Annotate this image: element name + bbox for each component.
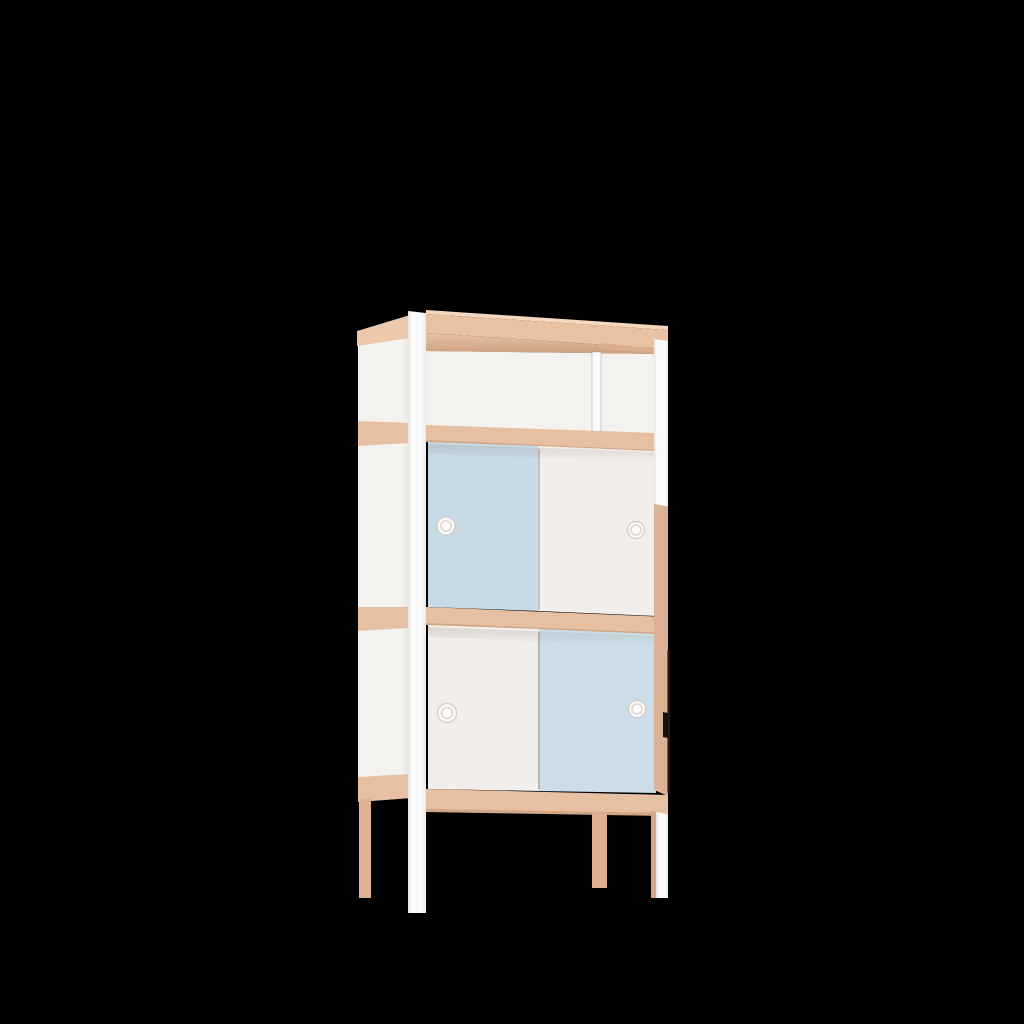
side-bottom-rail: [358, 774, 410, 802]
upper-compartment: [428, 442, 656, 616]
lower-right-knob: [629, 701, 646, 718]
lower-left-knob: [438, 704, 457, 723]
right-edge-gap: [663, 712, 668, 738]
right-edge: [654, 339, 669, 796]
front-left-post: [408, 311, 426, 913]
front-right-leg: [656, 812, 668, 898]
lower-compartment: [428, 625, 656, 793]
side-middle-rail-lower: [358, 607, 410, 631]
knob-circle: [629, 701, 646, 718]
side-panel: [358, 335, 410, 802]
back-left-leg: [359, 798, 371, 898]
back-right-leg: [592, 812, 607, 888]
render-canvas: [0, 0, 1024, 1024]
knob-circle: [628, 522, 645, 539]
side-middle-rail-upper: [358, 421, 410, 446]
right-post-upper: [654, 339, 668, 507]
shelf-back-panel: [426, 351, 668, 434]
shelf-divider: [592, 352, 601, 434]
upper-right-knob: [628, 522, 645, 539]
upper-left-knob: [437, 517, 455, 535]
knob-circle: [437, 517, 455, 535]
cabinet-render: [0, 0, 1024, 1024]
left-side-face: [357, 315, 410, 802]
open-top-shelf: [426, 310, 668, 434]
right-strip-wood: [654, 504, 668, 796]
front-left-post-face: [408, 311, 426, 913]
knob-circle: [438, 704, 457, 723]
